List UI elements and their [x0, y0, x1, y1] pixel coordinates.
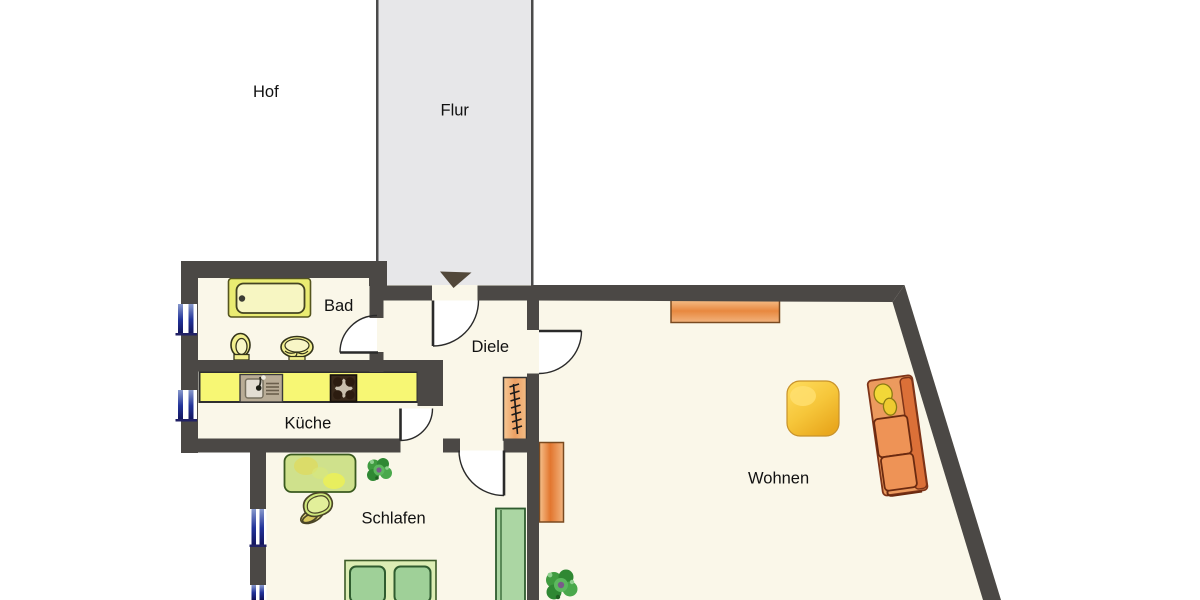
svg-text:Schlafen: Schlafen — [362, 510, 426, 528]
svg-text:Flur: Flur — [441, 102, 470, 120]
svg-text:Diele: Diele — [472, 338, 510, 356]
svg-text:Bad: Bad — [324, 297, 353, 315]
svg-text:Küche: Küche — [285, 415, 332, 433]
svg-text:Hof: Hof — [253, 83, 279, 101]
svg-text:Wohnen: Wohnen — [748, 470, 809, 488]
